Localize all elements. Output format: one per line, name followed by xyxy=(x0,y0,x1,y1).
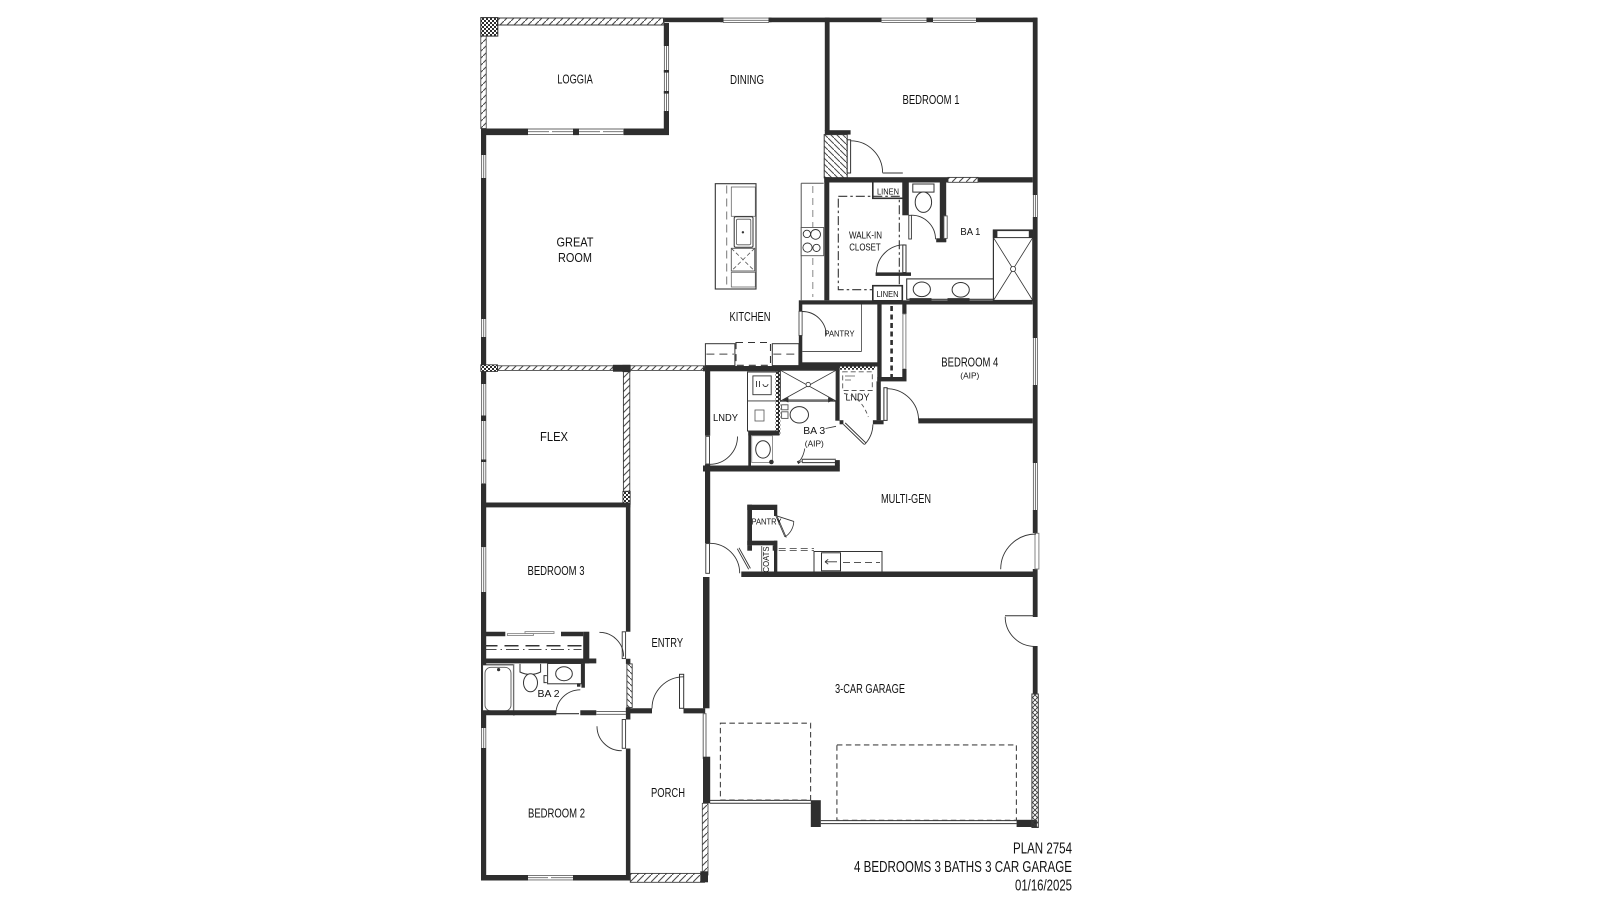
svg-text:(AIP): (AIP) xyxy=(805,438,824,448)
svg-text:KITCHEN: KITCHEN xyxy=(730,309,771,324)
svg-text:WALK-IN: WALK-IN xyxy=(849,230,882,242)
svg-text:ENTRY: ENTRY xyxy=(652,635,684,650)
svg-text:FLEX: FLEX xyxy=(540,429,568,444)
svg-text:LINEN: LINEN xyxy=(877,289,899,299)
svg-text:BEDROOM 4: BEDROOM 4 xyxy=(941,355,998,370)
svg-text:GREAT: GREAT xyxy=(557,234,594,249)
svg-text:BEDROOM 1: BEDROOM 1 xyxy=(903,92,960,107)
svg-text:3-CAR GARAGE: 3-CAR GARAGE xyxy=(835,681,905,696)
svg-text:LNDY: LNDY xyxy=(713,412,738,424)
svg-text:BA 3: BA 3 xyxy=(803,425,825,437)
svg-text:MULTI-GEN: MULTI-GEN xyxy=(881,491,931,506)
svg-text:PANTRY: PANTRY xyxy=(752,517,782,527)
svg-text:(AIP): (AIP) xyxy=(960,371,979,381)
svg-text:BEDROOM 3: BEDROOM 3 xyxy=(528,563,585,578)
svg-text:LOGGIA: LOGGIA xyxy=(557,71,593,86)
svg-text:BA 2: BA 2 xyxy=(538,688,560,700)
svg-text:CLOSET: CLOSET xyxy=(849,242,881,254)
svg-text:COATS: COATS xyxy=(761,546,771,572)
svg-text:BEDROOM 2: BEDROOM 2 xyxy=(528,806,585,821)
svg-text:PLAN 2754: PLAN 2754 xyxy=(1013,841,1072,858)
svg-text:LINEN: LINEN xyxy=(877,187,899,197)
svg-text:DINING: DINING xyxy=(730,72,764,87)
svg-text:LNDY: LNDY xyxy=(846,391,870,403)
svg-text:01/16/2025: 01/16/2025 xyxy=(1015,878,1072,895)
svg-text:ROOM: ROOM xyxy=(558,250,592,265)
svg-text:4 BEDROOMS 3 BATHS 3 CAR GARAG: 4 BEDROOMS 3 BATHS 3 CAR GARAGE xyxy=(854,859,1072,876)
svg-text:PORCH: PORCH xyxy=(651,785,685,800)
svg-text:PANTRY: PANTRY xyxy=(825,329,855,339)
svg-text:BA 1: BA 1 xyxy=(960,226,980,238)
